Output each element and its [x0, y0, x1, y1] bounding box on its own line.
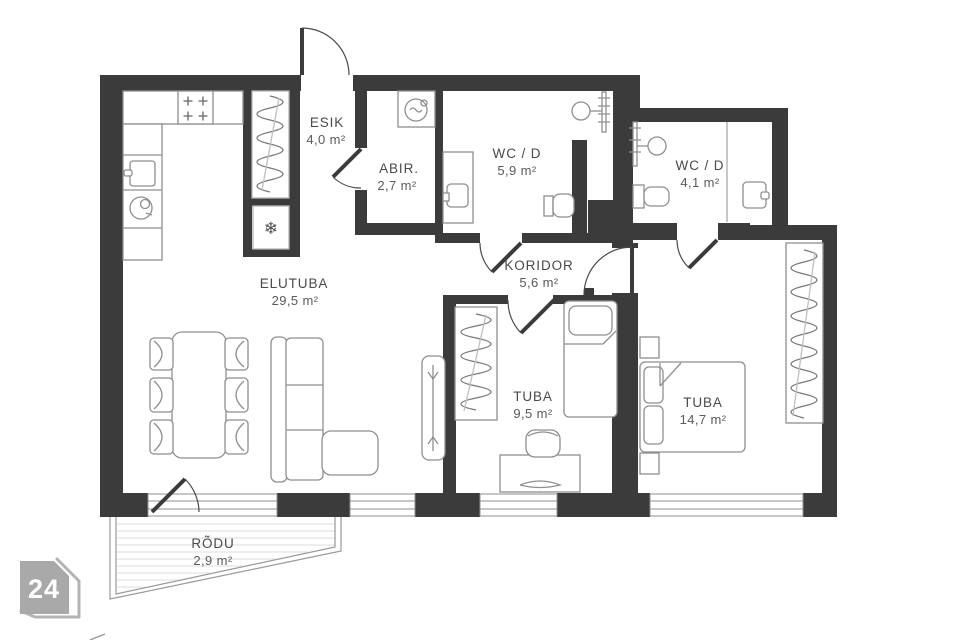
svg-text:ESIK: ESIK	[310, 115, 344, 130]
single-bed	[564, 301, 617, 417]
svg-text:5,9 m²: 5,9 m²	[497, 163, 537, 178]
unit-number-badge: 24	[20, 559, 79, 617]
tv-unit	[422, 356, 445, 460]
desk	[500, 455, 580, 492]
wc41-toilet-icon	[633, 185, 669, 208]
floor-plan-page: ❄	[0, 0, 960, 640]
room-label-abir: ABIR. 2,7 m²	[377, 161, 419, 193]
window-tuba-small	[480, 494, 557, 516]
edge-mark	[90, 634, 105, 640]
svg-text:5,6 m²: 5,6 m²	[519, 275, 559, 290]
tuba147-wardrobe-icon	[786, 243, 823, 423]
svg-text:ELUTUBA: ELUTUBA	[260, 276, 329, 291]
sofa	[271, 337, 378, 482]
wc59-vanity	[443, 152, 473, 223]
wc59-shower-icon	[572, 92, 610, 132]
room-label-tuba-95: TUBA 9,5 m²	[513, 389, 553, 421]
room-label-elutuba: ELUTUBA 29,5 m²	[260, 276, 329, 308]
room-label-esik: ESIK 4,0 m²	[306, 115, 346, 147]
svg-text:WC / D: WC / D	[493, 146, 542, 161]
room-label-koridor: KORIDOR 5,6 m²	[504, 258, 573, 290]
svg-text:2,7 m²: 2,7 m²	[377, 178, 417, 193]
wc59-toilet-icon	[544, 194, 574, 217]
svg-text:9,5 m²: 9,5 m²	[513, 406, 553, 421]
svg-text:29,5 m²: 29,5 m²	[272, 293, 319, 308]
window-tuba-large	[650, 494, 803, 516]
esik-wardrobe-icon	[252, 91, 289, 198]
badge-number: 24	[28, 574, 60, 604]
svg-text:TUBA: TUBA	[683, 395, 723, 410]
tuba-95-door-leaf	[521, 300, 554, 333]
svg-text:KORIDOR: KORIDOR	[504, 258, 573, 273]
svg-text:RÕDU: RÕDU	[191, 536, 234, 551]
desk-chair	[526, 430, 560, 457]
floor-plan: ❄	[0, 0, 960, 640]
svg-text:WC / D: WC / D	[676, 158, 725, 173]
washing-machine-icon	[398, 91, 435, 127]
stove-icon	[178, 91, 213, 124]
fridge-icon: ❄	[253, 206, 289, 249]
svg-text:4,0 m²: 4,0 m²	[306, 132, 346, 147]
tuba95-wardrobe-icon	[455, 307, 497, 420]
window-elutuba	[350, 494, 415, 516]
abir-door-leaf	[333, 149, 361, 177]
svg-text:TUBA: TUBA	[513, 389, 553, 404]
room-label-wcd-59: WC / D 5,9 m²	[493, 146, 542, 178]
wc-41-door-leaf	[689, 240, 717, 268]
dining-table	[172, 332, 226, 458]
room-label-wcd-41: WC / D 4,1 m²	[676, 158, 725, 190]
wc41-shower-icon	[629, 122, 666, 166]
wc41-washbasin-icon	[743, 182, 769, 208]
furniture: ❄	[123, 91, 823, 492]
svg-text:ABIR.: ABIR.	[379, 161, 419, 176]
svg-text:❄: ❄	[264, 219, 278, 239]
svg-text:4,1 m²: 4,1 m²	[680, 175, 720, 190]
svg-text:14,7 m²: 14,7 m²	[680, 412, 727, 427]
svg-text:2,9 m²: 2,9 m²	[193, 553, 233, 568]
